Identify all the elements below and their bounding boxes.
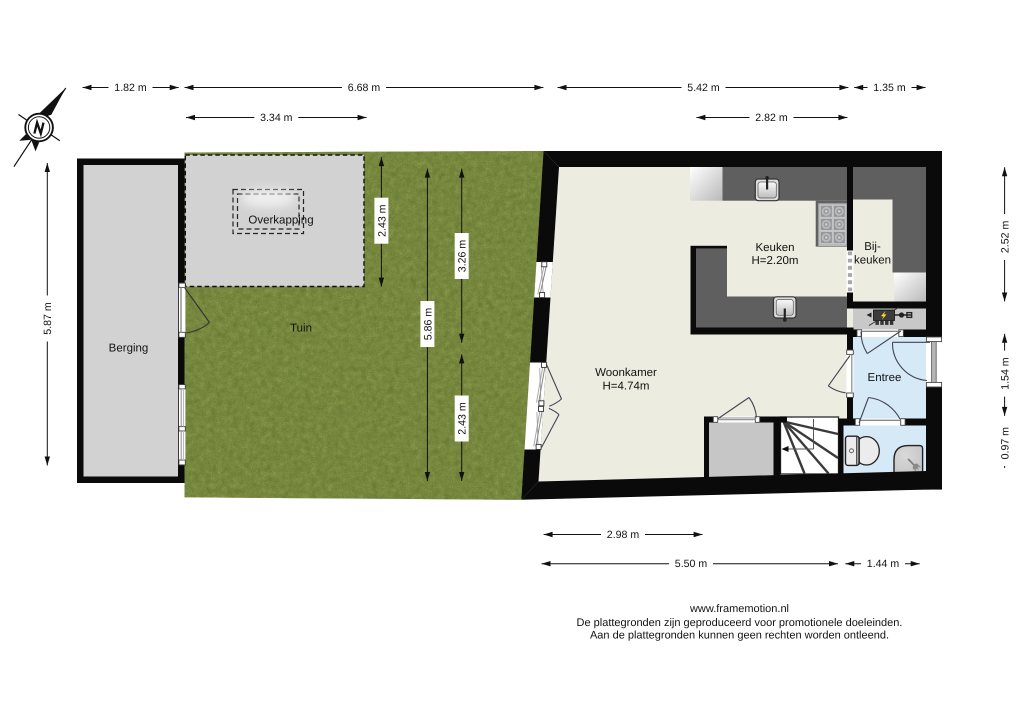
svg-text:Keuken: Keuken [755,242,794,254]
svg-text:Woonkamer: Woonkamer [595,367,657,379]
svg-text:5.42 m: 5.42 m [687,82,720,94]
svg-text:Overkapping: Overkapping [248,215,313,227]
svg-text:Bij-: Bij- [864,241,881,253]
svg-text:keuken: keuken [854,255,891,267]
svg-text:3.26 m: 3.26 m [457,240,469,273]
svg-text:0.97 m: 0.97 m [1000,427,1012,460]
svg-text:1.35 m: 1.35 m [873,82,906,94]
svg-text:www.framemotion.nl: www.framemotion.nl [689,603,789,615]
svg-text:3.34 m: 3.34 m [260,112,293,124]
svg-text:6.68 m: 6.68 m [348,82,381,94]
svg-text:1.44 m: 1.44 m [867,558,900,570]
svg-text:5.87 m: 5.87 m [42,302,54,335]
svg-text:Aan de plattegronden kunnen ge: Aan de plattegronden kunnen geen rechten… [590,630,889,642]
svg-text:1.82 m: 1.82 m [114,82,147,94]
svg-text:Tuin: Tuin [290,323,312,335]
svg-text:H=4.74m: H=4.74m [603,381,650,393]
svg-text:5.86 m: 5.86 m [422,308,434,341]
svg-text:H=2.20m: H=2.20m [752,255,799,267]
svg-text:Entree: Entree [868,372,902,384]
svg-text:2.98 m: 2.98 m [607,529,640,541]
svg-text:1.54 m: 1.54 m [1000,357,1012,390]
svg-text:2.82 m: 2.82 m [755,112,788,124]
svg-text:2.52 m: 2.52 m [1000,221,1012,254]
svg-text:5.50 m: 5.50 m [675,558,708,570]
svg-text:De plattegronden zijn geproduc: De plattegronden zijn geproduceerd voor … [577,617,903,629]
svg-text:Berging: Berging [109,343,149,355]
svg-text:2.43 m: 2.43 m [376,204,388,237]
svg-text:2.43 m: 2.43 m [457,402,469,435]
